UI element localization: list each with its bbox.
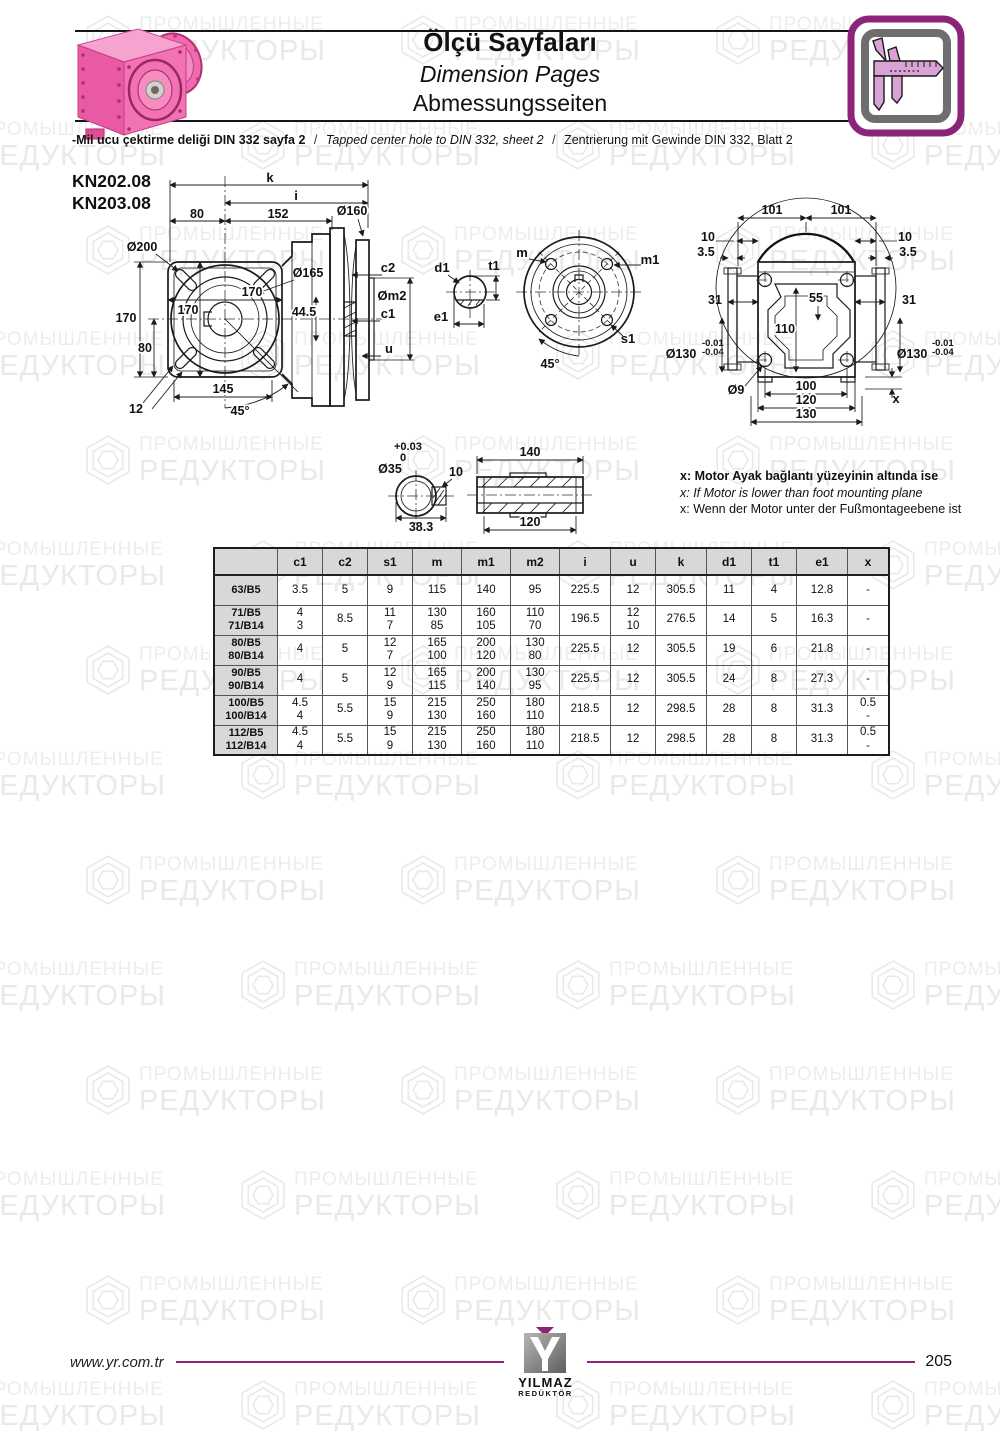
- logo-name: YILMAZ: [518, 1376, 572, 1389]
- cell-x: -: [848, 575, 890, 605]
- dim-140: 140: [520, 445, 541, 459]
- col-header-m2: m2: [511, 548, 560, 575]
- cell-c2: 5.5: [323, 725, 368, 755]
- dim-m1: m1: [641, 252, 660, 267]
- page-number: 205: [925, 1353, 952, 1371]
- dim-55: 55: [809, 291, 823, 305]
- table-corner: [214, 548, 278, 575]
- dim-44-5: 44.5: [292, 305, 316, 319]
- dim-10-right: 10: [898, 230, 912, 244]
- row-label: 80/B580/B14: [214, 635, 278, 665]
- cell-e1: 31.3: [797, 695, 848, 725]
- dim-12: 12: [129, 402, 143, 416]
- cell-i: 218.5: [560, 725, 611, 755]
- row-label: 100/B5100/B14: [214, 695, 278, 725]
- caliper-icon: [846, 14, 966, 138]
- dim-80-left: 80: [138, 341, 152, 355]
- cell-m1: 160105: [462, 605, 511, 635]
- cell-m: 215130: [413, 695, 462, 725]
- cell-m1: 200120: [462, 635, 511, 665]
- cell-t1: 8: [752, 725, 797, 755]
- cell-s1: 159: [368, 725, 413, 755]
- gearbox-product-image: [58, 5, 226, 152]
- cell-i: 225.5: [560, 665, 611, 695]
- cell-x: -: [848, 665, 890, 695]
- dim-152: 152: [268, 207, 289, 221]
- cell-e1: 31.3: [797, 725, 848, 755]
- cell-s1: 159: [368, 695, 413, 725]
- dim-10-left: 10: [701, 230, 715, 244]
- col-header-t1: t1: [752, 548, 797, 575]
- col-header-d1: d1: [707, 548, 752, 575]
- cell-d1: 28: [707, 695, 752, 725]
- dim-31-right: 31: [902, 293, 916, 307]
- col-header-m: m: [413, 548, 462, 575]
- cell-c2: 5: [323, 665, 368, 695]
- dim-d160: Ø160: [337, 204, 368, 218]
- shaft-detail-drawing: +0.03 0 Ø35 10 38.3: [372, 432, 672, 540]
- cell-t1: 4: [752, 575, 797, 605]
- dim-38-3: 38.3: [409, 520, 433, 534]
- cell-m2: 13095: [511, 665, 560, 695]
- cell-m: 115: [413, 575, 462, 605]
- cell-k: 276.5: [656, 605, 707, 635]
- cell-d1: 24: [707, 665, 752, 695]
- yilmaz-logo-icon: [522, 1327, 568, 1375]
- cell-k: 298.5: [656, 695, 707, 725]
- page-title-de: Abmessungsseiten: [240, 89, 780, 118]
- cell-c2: 8.5: [323, 605, 368, 635]
- cell-i: 218.5: [560, 695, 611, 725]
- cell-m: 165100: [413, 635, 462, 665]
- cell-t1: 8: [752, 665, 797, 695]
- dim-d165: Ø165: [293, 266, 324, 280]
- dim-130: 130: [796, 407, 817, 421]
- dim-d9: Ø9: [728, 383, 745, 397]
- cell-i: 225.5: [560, 635, 611, 665]
- dim-d130-left: Ø130: [666, 347, 697, 361]
- cell-m1: 250160: [462, 695, 511, 725]
- cell-m1: 250160: [462, 725, 511, 755]
- dim-120-shaft: 120: [520, 515, 541, 529]
- dim-80-top: 80: [190, 207, 204, 221]
- cell-k: 305.5: [656, 575, 707, 605]
- dim-key10: 10: [449, 465, 463, 479]
- cell-m2: 180110: [511, 725, 560, 755]
- cell-e1: 12.8: [797, 575, 848, 605]
- dim-u: u: [385, 341, 393, 356]
- cell-m2: 95: [511, 575, 560, 605]
- cell-m1: 200140: [462, 665, 511, 695]
- cell-i: 225.5: [560, 575, 611, 605]
- cell-d1: 14: [707, 605, 752, 635]
- dim-tol2-right: -0.04: [932, 347, 954, 358]
- motor-foot-note: x: Motor Ayak bağlantı yüzeyinin altında…: [680, 468, 980, 518]
- dim-170-outer: 170: [116, 311, 137, 325]
- motor-foot-note-en: x: If Motor is lower than foot mounting …: [680, 485, 980, 502]
- col-header-k: k: [656, 548, 707, 575]
- dim-s1: s1: [621, 331, 635, 346]
- cell-x: 0.5-: [848, 725, 890, 755]
- cell-c2: 5: [323, 575, 368, 605]
- dim-x: x: [892, 391, 900, 406]
- footer-rule-left: [176, 1361, 505, 1363]
- dim-m: m: [516, 245, 528, 260]
- cell-c1: 3.5: [278, 575, 323, 605]
- din-note-en: Tapped center hole to DIN 332, sheet 2: [326, 133, 544, 147]
- row-label: 112/B5112/B14: [214, 725, 278, 755]
- cell-e1: 16.3: [797, 605, 848, 635]
- dim-k: k: [266, 172, 274, 185]
- din-note-tr: -Mil ucu çektirme deliği DIN 332 sayfa 2: [72, 133, 305, 147]
- col-header-c2: c2: [323, 548, 368, 575]
- cell-u: 12: [611, 725, 656, 755]
- footer-rule-right: [587, 1361, 916, 1363]
- cell-m: 165115: [413, 665, 462, 695]
- cell-x: 0.5-: [848, 695, 890, 725]
- dim-c1: c1: [381, 306, 395, 321]
- page-title: Ölçü Sayfaları: [240, 26, 780, 59]
- dim-d1: d1: [434, 260, 449, 275]
- rear-view-drawing: 101 101 10 3.5 10 3.5 31 31 55 110 -0.01…: [660, 196, 963, 442]
- dim-31-left: 31: [708, 293, 722, 307]
- cell-c1: 4.54: [278, 695, 323, 725]
- dim-101-left: 101: [762, 203, 783, 217]
- dim-100: 100: [796, 379, 817, 393]
- dim-3-5-left: 3.5: [697, 245, 714, 259]
- page-title-block: Ölçü Sayfaları Dimension Pages Abmessung…: [240, 26, 780, 118]
- motor-foot-note-tr: x: Motor Ayak bağlantı yüzeyinin altında…: [680, 468, 980, 485]
- dim-d35: Ø35: [378, 462, 402, 476]
- cell-m2: 13080: [511, 635, 560, 665]
- cell-e1: 27.3: [797, 665, 848, 695]
- dimension-table: c1c2s1mm1m2iukd1t1e1x63/B53.559115140952…: [213, 547, 890, 756]
- cell-m2: 11070: [511, 605, 560, 635]
- dim-tol-plus: +0.03: [394, 441, 422, 453]
- cell-m: 215130: [413, 725, 462, 755]
- col-header-c1: c1: [278, 548, 323, 575]
- cell-s1: 117: [368, 605, 413, 635]
- dim-i: i: [294, 188, 298, 203]
- cell-s1: 9: [368, 575, 413, 605]
- dim-c2: c2: [381, 260, 395, 275]
- cell-d1: 28: [707, 725, 752, 755]
- dim-145: 145: [213, 382, 234, 396]
- cell-u: 12: [611, 635, 656, 665]
- cell-t1: 8: [752, 695, 797, 725]
- row-label: 71/B571/B14: [214, 605, 278, 635]
- cell-c1: 4.54: [278, 725, 323, 755]
- col-header-i: i: [560, 548, 611, 575]
- dim-120: 120: [796, 393, 817, 407]
- cell-u: 12: [611, 695, 656, 725]
- cell-k: 305.5: [656, 665, 707, 695]
- cell-e1: 21.8: [797, 635, 848, 665]
- col-header-e1: e1: [797, 548, 848, 575]
- cell-s1: 127: [368, 635, 413, 665]
- cell-u: 12: [611, 575, 656, 605]
- cell-x: -: [848, 635, 890, 665]
- dim-45deg-front: 45°: [231, 404, 250, 418]
- logo-subtitle: REDÜKTÖR: [518, 1389, 573, 1398]
- cell-u: 12: [611, 665, 656, 695]
- note-separator: /: [314, 133, 317, 147]
- col-header-x: x: [848, 548, 890, 575]
- cell-u: 1210: [611, 605, 656, 635]
- footer: www.yr.com.tr YILMAZ REDÜKTÖR 205: [70, 1330, 952, 1394]
- din-note-line: -Mil ucu çektirme deliği DIN 332 sayfa 2…: [72, 133, 793, 147]
- dim-170-inner: 170: [178, 303, 199, 317]
- dim-e1: e1: [434, 309, 448, 324]
- cell-x: -: [848, 605, 890, 635]
- dim-45deg-flange: 45°: [541, 357, 560, 371]
- col-header-s1: s1: [368, 548, 413, 575]
- dim-101-right: 101: [831, 203, 852, 217]
- cell-i: 196.5: [560, 605, 611, 635]
- cell-m2: 180110: [511, 695, 560, 725]
- dim-d130-right: Ø130: [897, 347, 928, 361]
- col-header-m1: m1: [462, 548, 511, 575]
- cell-d1: 19: [707, 635, 752, 665]
- company-logo: YILMAZ REDÜKTÖR: [518, 1327, 573, 1398]
- row-label: 63/B5: [214, 575, 278, 605]
- cell-d1: 11: [707, 575, 752, 605]
- cell-m1: 140: [462, 575, 511, 605]
- cell-k: 298.5: [656, 725, 707, 755]
- dimension-table-wrap: c1c2s1mm1m2iukd1t1e1x63/B53.559115140952…: [213, 547, 890, 756]
- cell-k: 305.5: [656, 635, 707, 665]
- note-separator: /: [552, 133, 555, 147]
- motor-foot-note-de: x: Wenn der Motor unter der Fußmontageeb…: [680, 501, 980, 518]
- front-side-view-drawing: k i 80 152 Ø160 Ø200 Ø165 170 170: [112, 172, 457, 434]
- dim-170-width: 170: [242, 285, 263, 299]
- flange-view-drawing: d1 t1 e1 m m1 s1 45°: [430, 228, 685, 388]
- cell-c1: 4: [278, 635, 323, 665]
- cell-c2: 5.5: [323, 695, 368, 725]
- dim-d200: Ø200: [127, 240, 158, 254]
- col-header-u: u: [611, 548, 656, 575]
- cell-t1: 5: [752, 605, 797, 635]
- cell-t1: 6: [752, 635, 797, 665]
- page-title-en: Dimension Pages: [240, 59, 780, 89]
- cell-c1: 4: [278, 665, 323, 695]
- cell-c1: 43: [278, 605, 323, 635]
- dim-m2: Øm2: [378, 288, 407, 303]
- dim-3-5-right: 3.5: [899, 245, 916, 259]
- din-note-de: Zentrierung mit Gewinde DIN 332, Blatt 2: [564, 133, 793, 147]
- cell-m: 13085: [413, 605, 462, 635]
- dim-tol2-left: -0.04: [702, 347, 724, 358]
- dim-110: 110: [775, 322, 795, 336]
- website-link[interactable]: www.yr.com.tr: [70, 1354, 164, 1371]
- dim-t1: t1: [488, 258, 500, 273]
- cell-s1: 129: [368, 665, 413, 695]
- cell-c2: 5: [323, 635, 368, 665]
- row-label: 90/B590/B14: [214, 665, 278, 695]
